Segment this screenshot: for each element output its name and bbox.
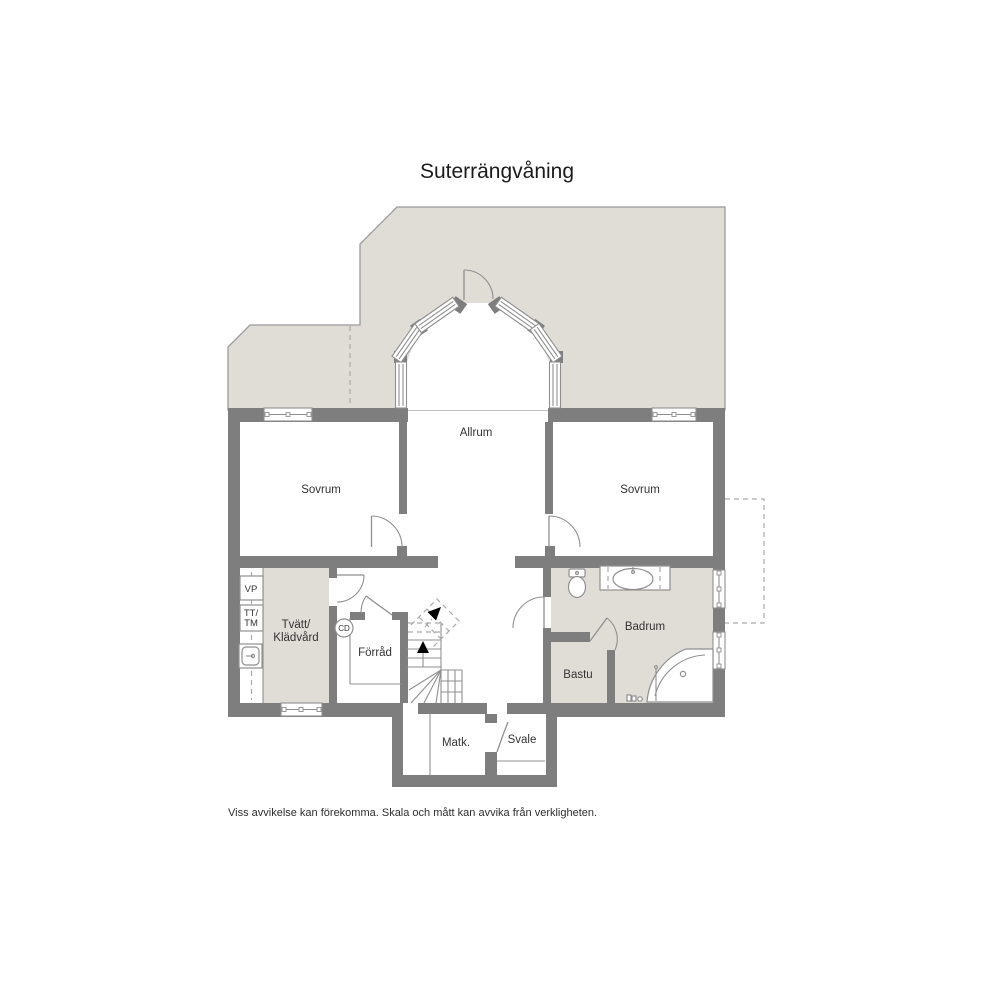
laundry-door [337, 575, 364, 602]
stairs-icon [407, 599, 462, 703]
bay-window-segment [550, 362, 561, 408]
storage-door [361, 596, 392, 615]
window [281, 703, 322, 716]
window [264, 408, 312, 421]
floor-plan-svg: Suterrängvåning [0, 0, 992, 992]
toilet-icon [569, 569, 586, 598]
label-tvatt-line1: Tvätt/ [282, 619, 312, 631]
floor-plan-page: Suterrängvåning [0, 0, 992, 992]
sink-vanity-icon [600, 566, 670, 590]
bathroom-door [513, 597, 544, 628]
label-forrad: Förråd [358, 647, 392, 659]
disclaimer-text: Viss avvikelse kan förekomma. Skala och … [228, 807, 597, 819]
label-badrum: Badrum [625, 621, 665, 633]
label-bastu: Bastu [563, 669, 592, 681]
label-tvatt-line2: Klädvård [273, 632, 318, 644]
window [713, 632, 725, 669]
laundry-sink-icon [239, 644, 262, 668]
label-tt-line2: TM [244, 618, 258, 629]
label-cd: CD [338, 624, 350, 633]
stairs-up-arrow [417, 641, 429, 653]
window [652, 408, 696, 421]
pantry-door [497, 722, 508, 752]
bedroom-right-door [549, 516, 580, 547]
label-svale: Svale [508, 734, 537, 746]
label-sovrum-right: Sovrum [620, 484, 660, 496]
label-allrum: Allrum [460, 427, 493, 439]
bedroom-left-door [372, 516, 403, 547]
label-vp: VP [245, 584, 258, 595]
page-title: Suterrängvåning [420, 160, 574, 183]
label-matk: Matk. [442, 737, 470, 749]
window [713, 570, 725, 608]
label-sovrum-left: Sovrum [301, 484, 341, 496]
exterior-dashed-outline [725, 499, 764, 623]
bay-window-segment [396, 362, 407, 408]
